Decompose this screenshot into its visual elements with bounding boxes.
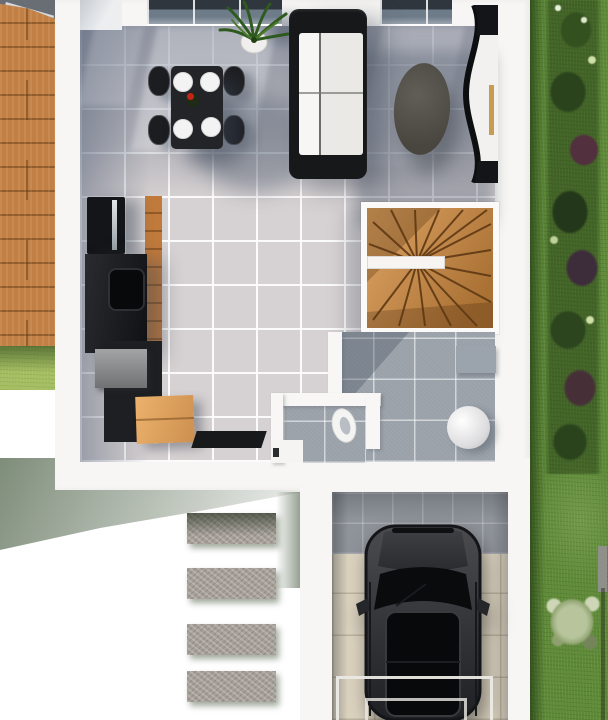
dining-chair <box>148 115 170 145</box>
fridge-handle <box>112 200 117 250</box>
water-heater <box>447 406 490 449</box>
stepping-stone <box>187 513 276 544</box>
plate <box>173 119 193 139</box>
staircase <box>361 202 499 334</box>
window-light <box>77 26 144 106</box>
window <box>380 0 452 26</box>
tv-cabinet <box>460 5 498 183</box>
garden-post <box>598 546 607 592</box>
garage-door-inner-line <box>365 698 467 720</box>
floor-plan-render <box>0 0 608 720</box>
garden-post-shadow <box>601 588 605 720</box>
garage-shadow-right <box>492 492 508 720</box>
sofa-cushions <box>299 33 363 155</box>
partition-wall <box>328 332 342 402</box>
plate <box>201 117 221 137</box>
corner-window <box>80 0 122 30</box>
fridge <box>87 197 125 254</box>
plate <box>173 72 193 92</box>
wooden-deck <box>0 0 55 346</box>
wc-wall <box>366 393 380 449</box>
dining-chair <box>223 115 245 145</box>
garage-shadow <box>276 492 300 588</box>
stepping-stone <box>187 671 276 702</box>
potted-plant <box>214 0 292 58</box>
wc-threshold <box>271 440 303 463</box>
doormat <box>191 431 267 448</box>
sofa <box>289 9 367 179</box>
stair-railing <box>367 256 445 269</box>
garage-door-outline <box>336 676 493 720</box>
countertop-appliance <box>95 349 147 388</box>
shrub-border <box>540 0 606 474</box>
deck-shadow <box>0 346 55 372</box>
stepping-stone <box>187 568 276 599</box>
flower-centerpiece <box>186 93 199 107</box>
plate <box>200 72 220 92</box>
kitchen-sink <box>108 268 145 311</box>
cardboard-box <box>135 395 195 444</box>
dining-chair <box>148 66 170 96</box>
stepping-stone <box>187 624 276 655</box>
wall-cabinet <box>456 346 496 373</box>
dining-chair <box>223 66 245 96</box>
wc-wall <box>271 393 381 406</box>
kitchen-counter <box>85 254 147 353</box>
